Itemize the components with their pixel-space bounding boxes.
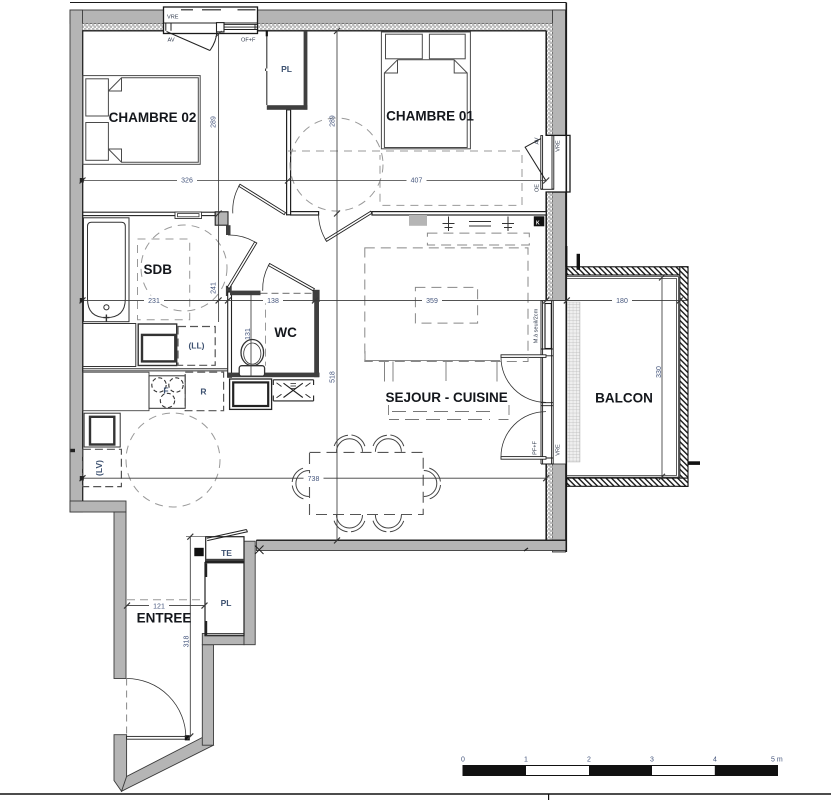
svg-text:VRE: VRE <box>556 140 562 152</box>
svg-text:TE: TE <box>221 548 232 558</box>
svg-text:SDB: SDB <box>143 262 172 277</box>
svg-text:131: 131 <box>245 328 252 340</box>
svg-text:2: 2 <box>587 757 591 764</box>
svg-text:121: 121 <box>153 603 165 610</box>
svg-text:ENTREE: ENTREE <box>137 611 192 626</box>
svg-text:OE: OE <box>535 184 541 192</box>
svg-text:326: 326 <box>181 177 193 184</box>
svg-text:4: 4 <box>713 757 717 764</box>
svg-text:3: 3 <box>650 757 654 764</box>
svg-text:WC: WC <box>274 325 297 340</box>
svg-text:738: 738 <box>308 476 320 483</box>
svg-text:(LV): (LV) <box>94 460 104 476</box>
svg-text:241: 241 <box>211 282 218 294</box>
svg-text:407: 407 <box>411 177 423 184</box>
svg-text:330: 330 <box>656 366 663 378</box>
svg-text:BALCON: BALCON <box>595 391 653 406</box>
svg-text:138: 138 <box>267 298 279 305</box>
svg-text:PL: PL <box>281 64 292 74</box>
svg-text:AV: AV <box>168 38 175 44</box>
svg-text:F: F <box>163 386 168 396</box>
svg-text:359: 359 <box>426 298 438 305</box>
svg-text:AV: AV <box>535 137 541 144</box>
svg-text:CHAMBRE 02: CHAMBRE 02 <box>109 110 197 125</box>
svg-text:VRE: VRE <box>167 15 179 21</box>
svg-text:PL: PL <box>221 598 232 608</box>
svg-text:M.à seuil/2cm: M.à seuil/2cm <box>534 308 540 343</box>
svg-text:(LL): (LL) <box>188 341 204 351</box>
svg-text:518: 518 <box>330 371 337 383</box>
svg-text:OF+F: OF+F <box>241 38 256 44</box>
svg-text:VRE: VRE <box>556 444 562 456</box>
svg-text:180: 180 <box>616 298 628 305</box>
svg-text:231: 231 <box>148 298 160 305</box>
svg-text:R: R <box>200 387 206 397</box>
svg-text:SEJOUR - CUISINE: SEJOUR - CUISINE <box>385 390 507 405</box>
svg-text:318: 318 <box>184 636 191 648</box>
svg-text:1: 1 <box>524 757 528 764</box>
svg-text:289: 289 <box>330 115 337 127</box>
svg-text:K: K <box>536 221 540 227</box>
svg-text:CHAMBRE 01: CHAMBRE 01 <box>386 109 474 124</box>
svg-text:289: 289 <box>211 116 218 128</box>
svg-text:5 m: 5 m <box>771 757 783 764</box>
svg-text:0: 0 <box>461 757 465 764</box>
svg-text:PF+F: PF+F <box>533 441 539 455</box>
